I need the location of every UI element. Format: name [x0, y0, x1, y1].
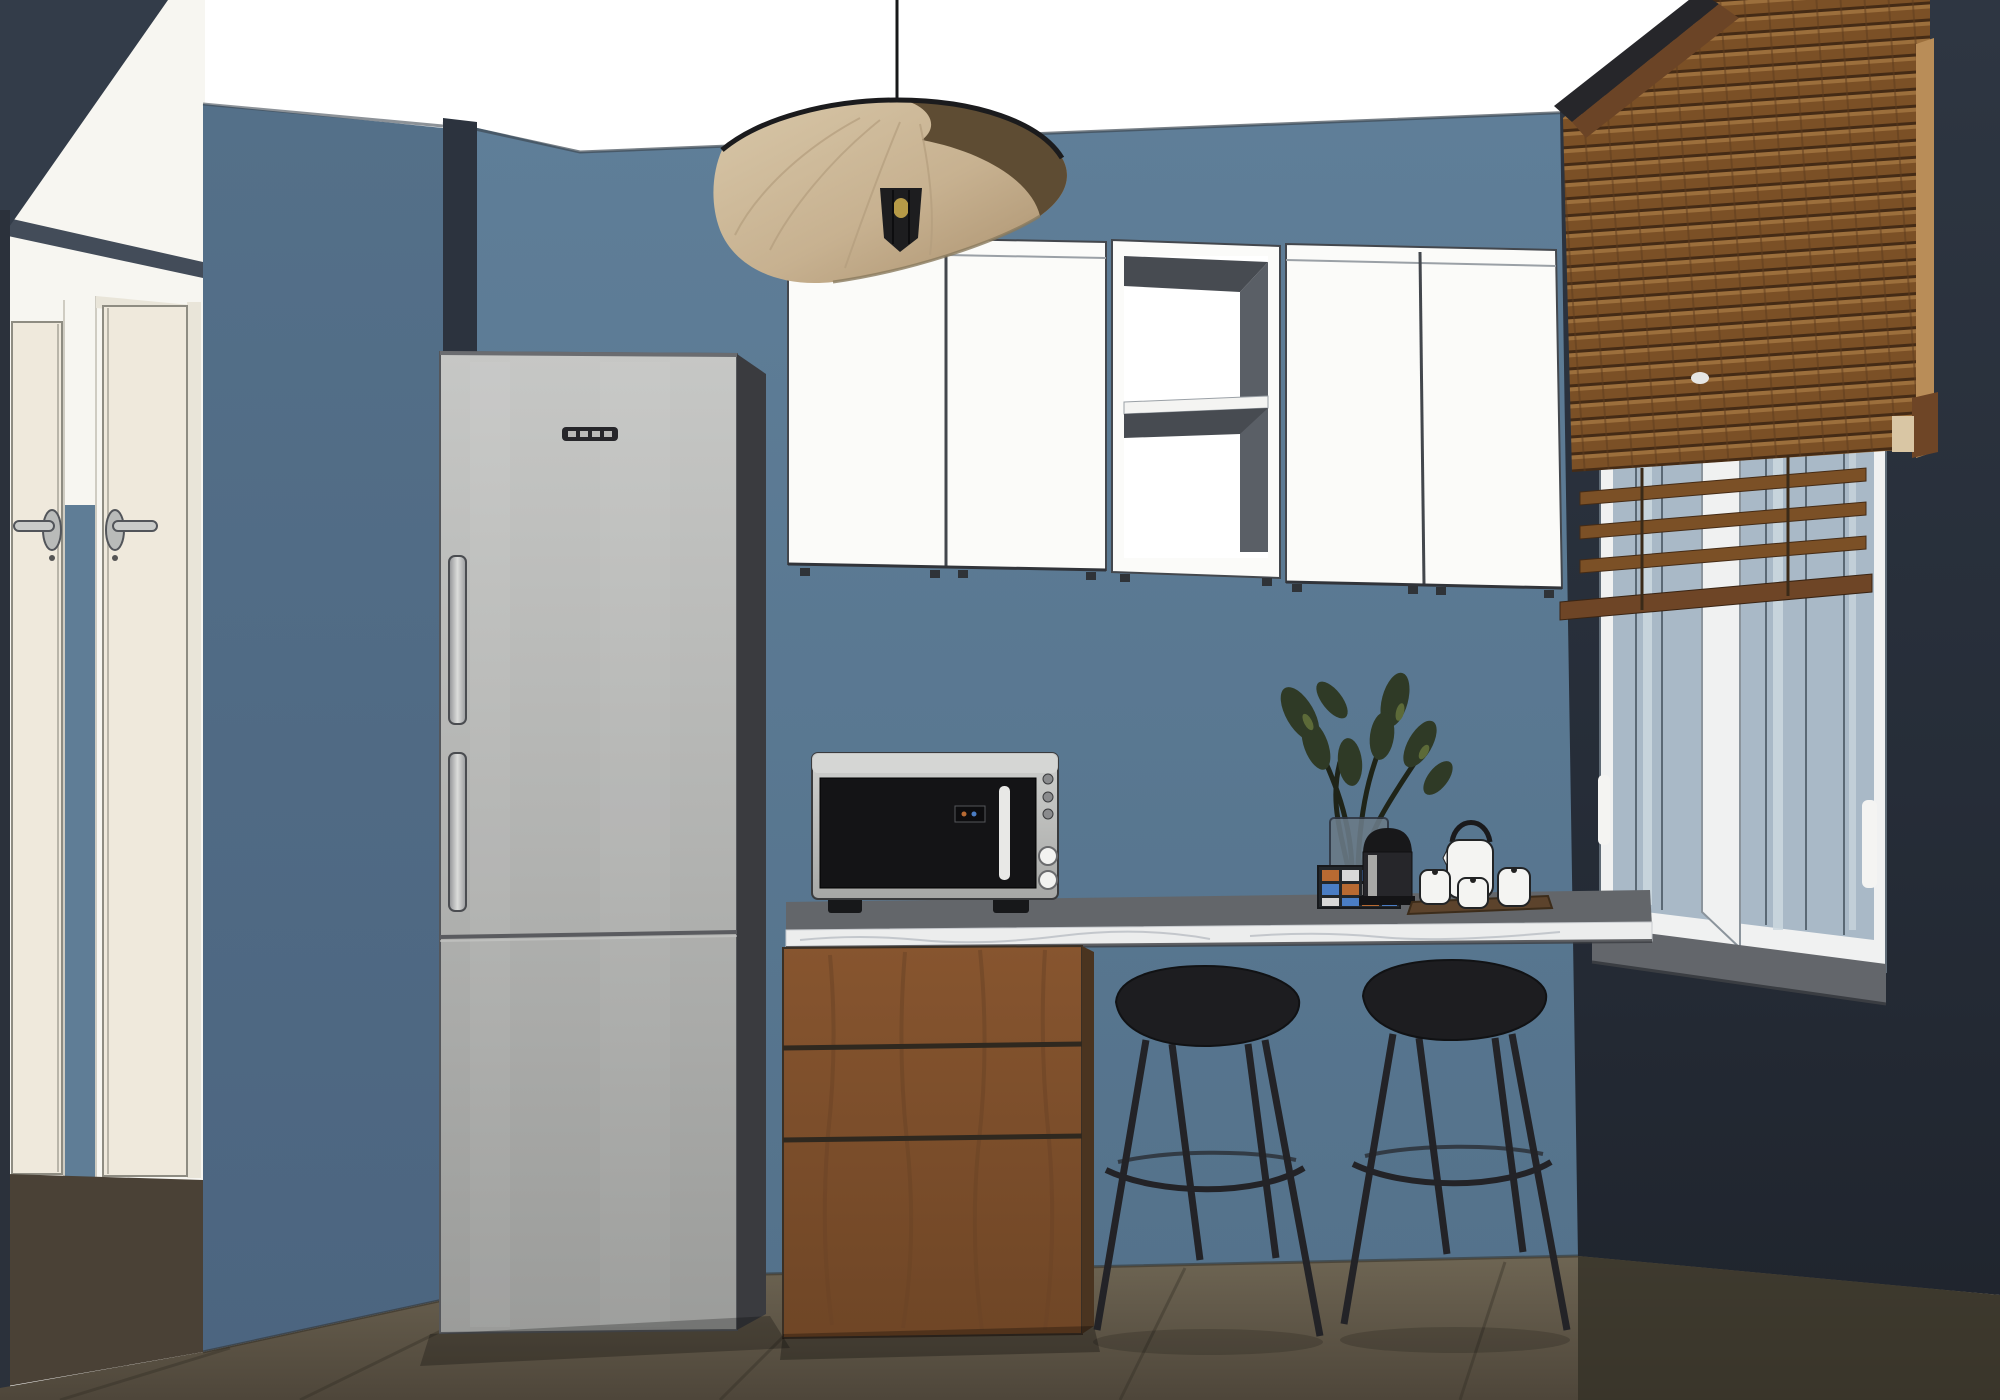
corner-column	[443, 118, 477, 354]
brushed-highlight	[600, 362, 670, 1327]
keyhole	[49, 555, 55, 561]
hall-door-left	[12, 322, 62, 1174]
fridge-brand-label	[562, 427, 618, 441]
blind-cord-knob	[1691, 372, 1709, 384]
display-dot	[962, 812, 967, 817]
capsule-coffee-machine	[1359, 828, 1415, 905]
stool-shadow	[1093, 1329, 1323, 1355]
fridge-side-panel	[737, 354, 766, 1330]
upper-cabinets	[788, 236, 1562, 598]
hallway	[6, 0, 205, 1386]
jar-knob	[1511, 867, 1517, 873]
fridge-top-edge	[440, 353, 737, 355]
open-shelf-unit	[1112, 240, 1280, 586]
window-handle-right	[1862, 800, 1877, 888]
fridge-handle-lower	[449, 753, 466, 911]
stool-shadow	[1340, 1327, 1570, 1353]
left-edge-strip	[0, 210, 10, 1400]
kitchen-render	[0, 0, 2000, 1400]
blind-rail-cap	[1912, 392, 1938, 458]
tea-jar	[1420, 870, 1450, 904]
hall-floor	[8, 1174, 203, 1386]
stool-seat	[1116, 966, 1299, 1046]
tea-jar	[1498, 868, 1530, 906]
door-panel	[103, 306, 187, 1176]
bulb	[893, 198, 909, 218]
drawer-side	[1082, 946, 1094, 1334]
window-handle-left	[1598, 775, 1610, 845]
coffee-base	[1359, 896, 1415, 905]
keyhole	[112, 555, 118, 561]
render-viewport	[0, 0, 2000, 1400]
microwave-oven	[812, 753, 1058, 913]
hall-blue-pillar	[64, 505, 96, 1178]
microwave-display	[955, 806, 985, 822]
jar-knob	[1470, 877, 1476, 883]
upper-cabinet-right	[1286, 244, 1562, 598]
blind-corner-block	[1892, 416, 1914, 452]
door-frame-side	[187, 302, 201, 1178]
brushed-highlight	[470, 362, 510, 1327]
display-dot	[972, 812, 977, 817]
jar-knob	[1432, 869, 1438, 875]
lever-handle	[113, 521, 157, 531]
fridge-handle-upper	[449, 556, 466, 724]
microwave-top-band	[812, 753, 1058, 773]
coffee-metal-stripe	[1368, 855, 1377, 898]
walnut-drawer-unit	[780, 946, 1100, 1360]
door-panel	[12, 322, 62, 1174]
left-partition-wall	[203, 104, 443, 1352]
microwave-door-handle	[999, 786, 1010, 880]
upper-cabinet-left	[788, 236, 1106, 580]
refrigerator-stainless	[420, 352, 790, 1366]
hall-door-right	[96, 296, 201, 1178]
lever-handle	[14, 521, 54, 531]
hall-wall-strip	[64, 268, 96, 508]
